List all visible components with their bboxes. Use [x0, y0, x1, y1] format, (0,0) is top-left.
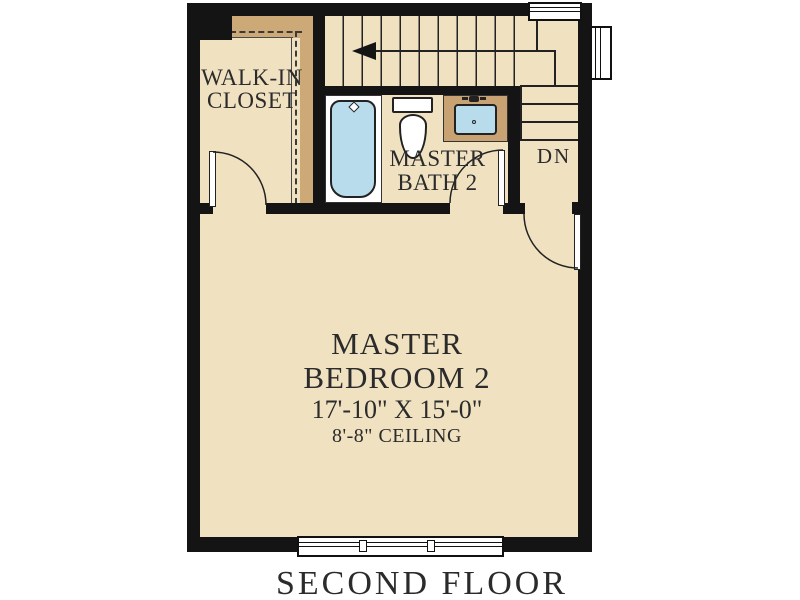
bedroom-door-leaf	[574, 214, 581, 270]
window-sash-line	[299, 542, 502, 543]
bedroom-label-line2: BEDROOM 2	[247, 361, 547, 395]
sink-faucet-handle-right	[480, 97, 486, 100]
bathtub-icon	[330, 100, 376, 198]
closet-shelf-edge-top	[230, 37, 293, 38]
closet-door-leaf	[209, 151, 216, 207]
window-mullion	[359, 540, 367, 552]
wall-corner-block	[198, 13, 232, 40]
stair-path-line	[374, 50, 556, 52]
closet-shelf-dashed-line-top	[230, 31, 302, 33]
top-window-icon	[528, 2, 582, 21]
page-title: SECOND FLOOR	[222, 565, 622, 600]
bedroom-label: MASTER BEDROOM 2 17'-10" X 15'-0" 8'-8" …	[247, 327, 547, 448]
wall-bath-landing	[508, 95, 520, 213]
window-sash-line	[595, 28, 596, 78]
sink-faucet-handle-left	[462, 97, 468, 100]
stair-landing-edge	[520, 85, 522, 141]
right-window-icon	[590, 26, 612, 80]
bath-label-line2: BATH 2	[375, 171, 500, 195]
bedroom-label-line1: MASTER	[247, 327, 547, 361]
stair-winder-1	[520, 85, 578, 87]
bedroom-ceiling-height: 8'-8" CEILING	[247, 424, 547, 448]
stair-direction-arrow-icon	[352, 42, 376, 60]
stairs-dn-label: DN	[532, 144, 576, 169]
bath-label: MASTER BATH 2	[375, 147, 500, 195]
wall-right	[578, 3, 592, 552]
window-mullion	[427, 540, 435, 552]
closet-shelf-dashed-line-right	[295, 31, 297, 204]
sink-drain-icon	[472, 120, 476, 124]
bath-label-line1: MASTER	[375, 147, 500, 171]
closet-label-line2: CLOSET	[198, 89, 306, 112]
door-hinge-block	[572, 202, 582, 214]
wall-bedroom-top-c	[503, 203, 525, 214]
bedroom-dimensions: 17'-10" X 15'-0"	[247, 395, 547, 424]
closet-shelf-edge-right	[291, 37, 292, 204]
wall-stairwell-left	[313, 14, 325, 214]
closet-label: WALK-IN CLOSET	[198, 66, 306, 112]
sink-faucet-icon	[469, 96, 479, 102]
stair-path-line-turn	[554, 50, 556, 87]
window-sash-line	[530, 11, 580, 12]
stair-winder-3	[520, 121, 578, 123]
sink-icon	[454, 104, 497, 135]
toilet-tank-icon	[392, 97, 433, 113]
bottom-window-icon	[297, 536, 504, 557]
stair-winder-2	[520, 103, 578, 105]
window-sash-line	[299, 546, 502, 547]
stair-tread-upper	[536, 16, 538, 51]
stair-winder-4	[520, 139, 578, 141]
closet-label-line1: WALK-IN	[198, 66, 306, 89]
floor-plan: WALK-IN CLOSET MASTER BATH 2 DN MASTER B…	[0, 0, 800, 600]
window-sash-line	[530, 7, 580, 8]
window-sash-line	[600, 28, 601, 78]
wall-under-stairs	[313, 86, 520, 95]
wall-bedroom-top-b	[266, 203, 450, 214]
